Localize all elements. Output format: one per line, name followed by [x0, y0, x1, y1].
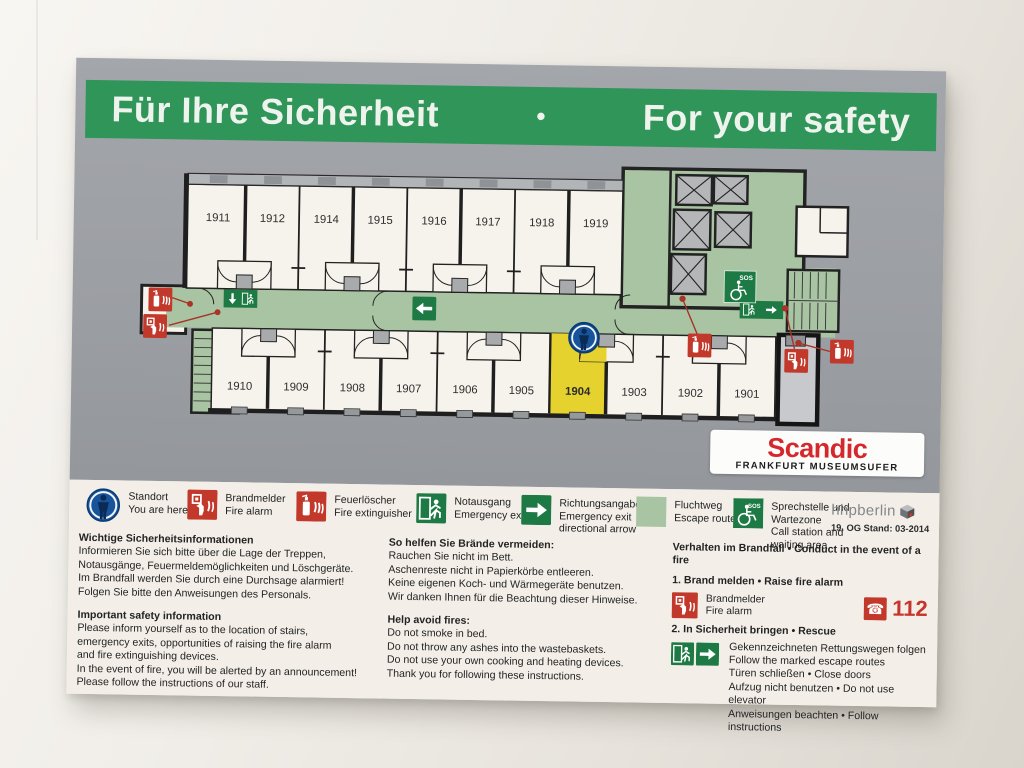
emergency-exit-sign-left — [224, 290, 258, 308]
legend-label-en: You are here — [128, 503, 188, 516]
legend-label-en: Fire alarm — [225, 505, 285, 518]
room-number: 1907 — [396, 383, 421, 395]
emergency-phone-icon: ☎ — [863, 597, 886, 620]
room-number: 1902 — [678, 388, 703, 400]
fire-alarm-icon — [672, 592, 698, 618]
direction-arrow-icon — [521, 495, 551, 525]
svg-text:☎: ☎ — [866, 602, 884, 618]
legend-item-feuerloescher: FeuerlöscherFire extinguisher — [296, 491, 412, 523]
legend-label-de: Brandmelder — [225, 492, 285, 505]
room-number: 1914 — [314, 214, 339, 226]
fire-alarm-icon — [143, 314, 167, 338]
alarm-label-en: Fire alarm — [706, 606, 765, 619]
emergency-exit-sign-right — [740, 301, 784, 319]
safety-info-column: Wichtige Sicherheitsinformationen Inform… — [76, 532, 381, 729]
room-number: 1910 — [227, 380, 252, 392]
room-number: 1917 — [475, 216, 500, 228]
bottom-right-extension — [777, 335, 818, 425]
escape-route-swatch — [636, 497, 666, 527]
room-number: 1903 — [621, 387, 646, 399]
photo-of-safety-sign: Für Ihre Sicherheit • For your safety — [0, 0, 1024, 768]
room-number-highlighted: 1904 — [565, 386, 591, 398]
title-english: For your safety — [643, 97, 911, 143]
right-rooms — [796, 207, 848, 257]
legend-item-notausgang: NotausgangEmergency exit — [416, 493, 527, 525]
scandic-wordmark: Scandic — [767, 434, 867, 462]
room-number: 1905 — [509, 385, 534, 397]
floor-plan: SOS — [137, 159, 863, 433]
fire-extinguisher-icon — [296, 491, 326, 521]
fire-extinguisher-icon — [148, 287, 172, 311]
emergency-exit-icon — [416, 493, 446, 523]
alarm-label-de: Brandmelder — [706, 594, 765, 607]
room-number: 1911 — [206, 212, 231, 224]
avoid-fires-column: So helfen Sie Brände vermeiden: Rauchen … — [386, 537, 665, 734]
legend-item-brandmelder: BrandmelderFire alarm — [187, 489, 286, 521]
legend-item-standort: StandortYou are here — [86, 488, 188, 524]
wall-corner-shade — [36, 0, 38, 240]
fire-extinguisher-icon — [688, 333, 712, 357]
sos-waiting-area-sign: SOS — [724, 271, 756, 303]
fire-alarm-icon — [187, 489, 217, 519]
rescue-row: Gekennzeichneten Rettungswegen folgen Fo… — [670, 640, 929, 738]
legend-item-fluchtweg: FluchtwegEscape route — [636, 497, 736, 529]
legend-label-de: Standort — [128, 491, 188, 504]
raise-alarm-row: Brandmelder Fire alarm ☎ 112 — [672, 592, 930, 622]
svg-text:SOS: SOS — [748, 504, 761, 510]
legend-label-de: Fluchtweg — [674, 499, 736, 512]
room-number: 1906 — [452, 384, 477, 396]
legend-label-de: Notausgang — [454, 496, 527, 510]
room-number: 1916 — [421, 215, 446, 227]
sign-upper-area: Für Ihre Sicherheit • For your safety — [70, 58, 947, 494]
title-separator: • — [536, 100, 546, 131]
scandic-logo: Scandic FRANKFURT MUSEUMSUFER — [710, 430, 925, 477]
title-german: Für Ihre Sicherheit — [111, 88, 439, 135]
room-number: 1915 — [367, 215, 392, 227]
legend-label-en: Escape route — [674, 512, 736, 525]
hhpberlin-cube-icon — [900, 503, 916, 519]
stairwell-right — [787, 270, 839, 332]
svg-text:SOS: SOS — [739, 275, 753, 282]
floor-status: 19. OG Stand: 03-2014 — [831, 523, 929, 535]
room-number: 1912 — [260, 213, 285, 225]
legend-label-en: Fire extinguisher — [334, 506, 412, 520]
emergency-exit-icon — [671, 642, 694, 665]
room-number: 1901 — [734, 388, 759, 400]
text-line: Anweisungen beachten • Follow instructio… — [728, 708, 928, 738]
room-number: 1909 — [283, 381, 308, 393]
you-are-here-marker — [569, 323, 599, 353]
room-number: 1919 — [583, 218, 608, 230]
you-are-here-icon — [86, 488, 121, 523]
publisher-name: hhpberlin — [831, 502, 896, 520]
room-number: 1918 — [529, 217, 554, 229]
title-bar: Für Ihre Sicherheit • For your safety — [85, 80, 937, 151]
publisher-block: hhpberlin 19. OG Stand: 03-2014 — [831, 502, 930, 535]
safety-sign-panel: Für Ihre Sicherheit • For your safety — [66, 58, 946, 708]
call-station-icon: SOS — [733, 498, 763, 528]
fire-extinguisher-icon — [830, 340, 854, 364]
room-number: 1908 — [340, 382, 365, 394]
fire-alarm-icon — [784, 349, 808, 373]
scandic-location: FRANKFURT MUSEUMSUFER — [735, 460, 898, 474]
text-line: Aufzug nicht benutzen • Do not use eleva… — [728, 681, 928, 711]
conduct-step1: 1. Brand melden • Raise fire alarm — [672, 574, 930, 591]
legend-label-de: Feuerlöscher — [334, 494, 412, 508]
conduct-step2: 2. In Sicherheit bringen • Rescue — [671, 623, 929, 640]
emergency-number: 112 — [892, 598, 928, 621]
legend-item-richtungsangabe: RichtungsangabeEmergency exit directiona… — [521, 495, 652, 537]
info-columns: Wichtige Sicherheitsinformationen Inform… — [76, 532, 931, 738]
direction-arrow-sign-left — [412, 296, 436, 320]
conduct-heading: Verhalten im Brandfall • Conduct in the … — [672, 541, 930, 572]
direction-arrow-icon — [696, 642, 719, 665]
conduct-column: Verhalten im Brandfall • Conduct in the … — [670, 541, 931, 737]
sign-lower-area: StandortYou are here BrandmelderFire ala… — [66, 480, 939, 708]
legend-label-en: Emergency exit — [454, 508, 527, 522]
